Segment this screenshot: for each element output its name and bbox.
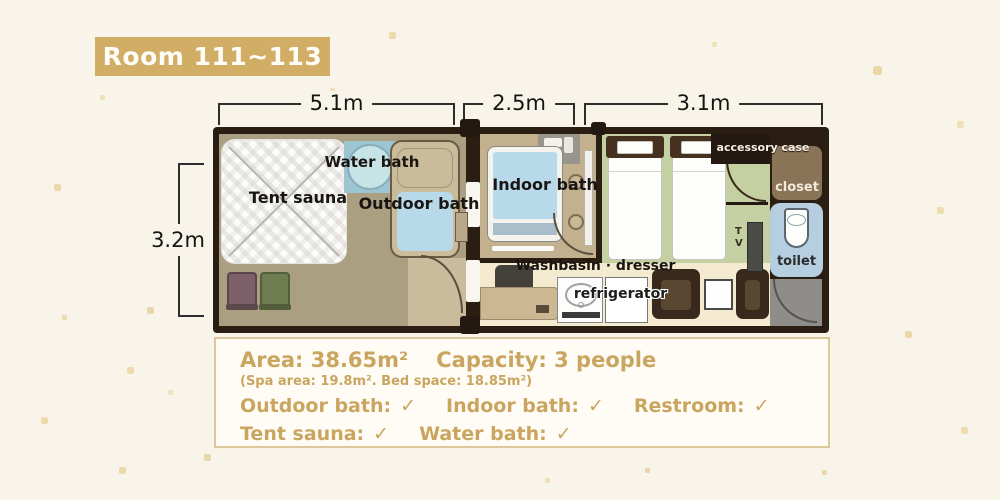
closet-label: closet xyxy=(775,180,819,195)
dimension-label-bath: 2.5m xyxy=(483,91,555,115)
accessory-case-label: accessory case xyxy=(711,142,815,154)
capacity-value: Capacity: 3 people xyxy=(436,348,656,372)
entrance xyxy=(770,279,822,326)
floorplan: TV closet toilet xyxy=(213,127,829,333)
bath-mat xyxy=(492,246,554,251)
gold-flecks-decoration xyxy=(0,0,5,5)
water-bath-label: Water bath xyxy=(313,154,431,171)
tent-sauna-label: Tent sauna xyxy=(233,189,363,207)
tv-unit xyxy=(747,222,763,272)
features-row-2: Tent sauna: ✓ Water bath: ✓ xyxy=(240,423,828,445)
tv-label: TV xyxy=(735,226,746,250)
check-icon: ✓ xyxy=(754,395,770,417)
room-title-badge: Room 111~113 xyxy=(95,37,330,76)
bed-left xyxy=(606,136,664,260)
armchair-right xyxy=(736,269,769,319)
wall-post xyxy=(460,316,480,334)
bed-pillow xyxy=(617,141,653,154)
spa-chair-left xyxy=(227,272,257,310)
entrance-door-arc xyxy=(773,279,817,323)
room-info-box: Area: 38.65m² Capacity: 3 people (Spa ar… xyxy=(214,337,830,448)
closet: closet xyxy=(772,146,822,200)
indoor-bath-tub xyxy=(487,146,563,242)
outdoor-bath-fixture xyxy=(455,212,468,242)
check-icon: ✓ xyxy=(400,395,416,417)
dimension-label-depth: 3.2m xyxy=(149,224,207,256)
side-table xyxy=(704,279,733,310)
features-row-1: Outdoor bath: ✓ Indoor bath: ✓ Restroom:… xyxy=(240,395,828,417)
area-value: Area: 38.65m² xyxy=(240,348,408,372)
dimension-bracket-spa: 5.1m xyxy=(218,103,455,125)
feature-indoor-bath: Indoor bath: ✓ xyxy=(446,395,604,417)
spa-chair-right xyxy=(260,272,290,310)
check-icon: ✓ xyxy=(556,423,572,445)
dimension-label-spa: 5.1m xyxy=(301,91,373,115)
feature-tent-sauna: Tent sauna: ✓ xyxy=(240,423,389,445)
toilet-label: toilet xyxy=(770,254,823,269)
door-gap-spa-wash xyxy=(466,260,480,302)
dimension-bracket-bedroom: 3.1m xyxy=(584,103,823,125)
info-sub-note: (Spa area: 19.8m². Bed space: 18.85m²) xyxy=(240,374,828,389)
dresser-counter xyxy=(480,287,558,320)
bedroom-door-panel xyxy=(726,202,768,205)
feature-outdoor-bath: Outdoor bath: ✓ xyxy=(240,395,416,417)
wall-post xyxy=(460,119,480,137)
dimension-label-bedroom: 3.1m xyxy=(668,91,740,115)
wall-post xyxy=(591,122,606,135)
info-line-area-capacity: Area: 38.65m² Capacity: 3 people xyxy=(240,348,828,372)
check-icon: ✓ xyxy=(588,395,604,417)
room-title: Room 111~113 xyxy=(103,42,323,71)
feature-water-bath: Water bath: ✓ xyxy=(419,423,572,445)
toilet-fixture xyxy=(784,208,809,248)
indoor-bath-label: Indoor bath xyxy=(481,176,609,194)
dimension-bracket-depth: 3.2m xyxy=(178,163,204,317)
refrigerator-label: refrigerator xyxy=(548,287,693,302)
toilet-room: toilet xyxy=(770,203,823,277)
floorplan-page: Room 111~113 5.1m 2.5m 3.1m 3.2m xyxy=(0,0,1000,500)
washbasin-dresser-label: Washbasin · dresser xyxy=(508,259,683,274)
feature-restroom: Restroom: ✓ xyxy=(634,395,770,417)
check-icon: ✓ xyxy=(373,423,389,445)
outdoor-bath-label: Outdoor bath xyxy=(349,195,489,213)
